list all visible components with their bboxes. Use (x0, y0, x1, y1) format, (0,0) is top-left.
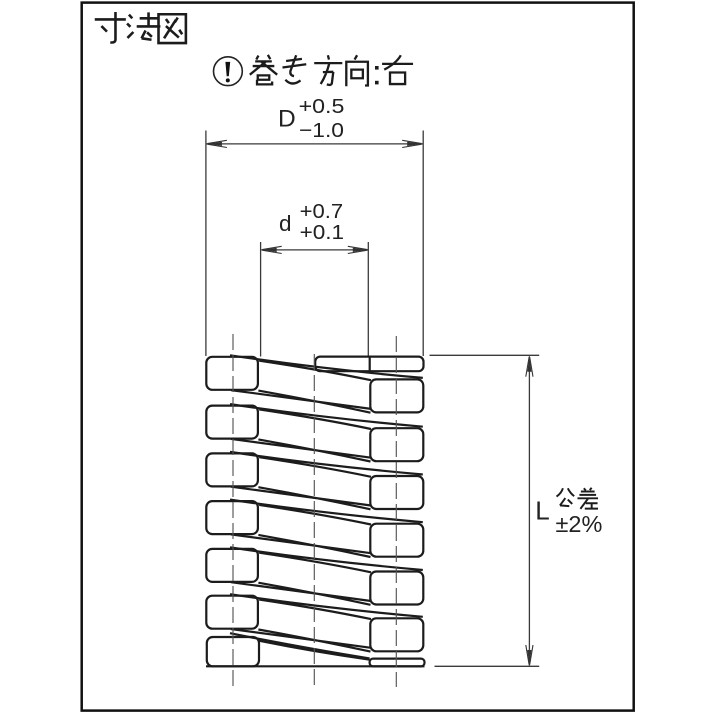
svg-text:+0.5: +0.5 (299, 95, 345, 118)
svg-text:L: L (535, 496, 549, 526)
svg-text:−1.0: −1.0 (299, 119, 344, 142)
svg-text:d: d (279, 211, 292, 236)
svg-text:D: D (278, 105, 296, 132)
svg-text:±2%: ±2% (556, 511, 603, 537)
svg-text:+0.1: +0.1 (300, 221, 345, 244)
svg-text:+0.7: +0.7 (300, 200, 344, 223)
